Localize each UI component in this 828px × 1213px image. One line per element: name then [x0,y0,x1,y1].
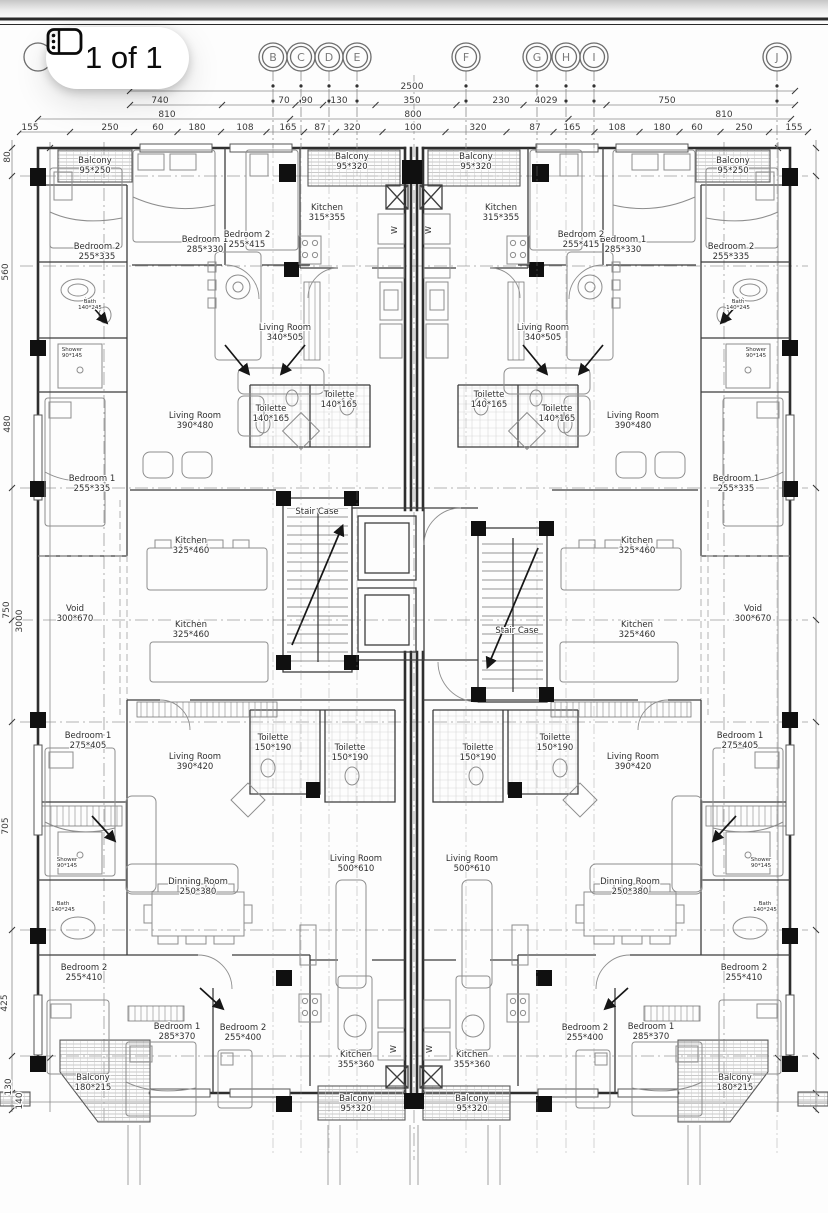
svg-text:Dinning Room: Dinning Room [168,877,228,887]
svg-text:275*405: 275*405 [70,741,107,751]
svg-text:255*335: 255*335 [79,252,116,262]
dimension-label: 87 [314,123,325,133]
room-label: Living Room390*480 [169,411,221,431]
svg-text:390*420: 390*420 [177,762,214,772]
svg-text:Bedroom 2: Bedroom 2 [61,963,108,973]
svg-text:Toilette: Toilette [257,733,289,743]
room-label: Living Room500*610 [330,854,382,874]
svg-text:Dinning Room: Dinning Room [600,877,660,887]
room-label: Living Room390*420 [169,752,221,772]
svg-text:325*460: 325*460 [173,630,210,640]
svg-text:Void: Void [744,604,762,614]
svg-text:Toilette: Toilette [255,404,287,414]
svg-text:285*330: 285*330 [187,245,224,255]
dimension-label: 155 [21,123,38,133]
dimension-label: 180 [653,123,670,133]
room-label: Kitchen315*355 [483,203,520,223]
svg-text:Living Room: Living Room [607,411,659,421]
grid-bubbles-layer: BCDEFGHIJ [24,43,791,1155]
room-label: Shower90*145 [62,347,83,359]
room-label: Kitchen325*460 [619,536,656,556]
svg-text:390*480: 390*480 [615,421,652,431]
washer-label: W [389,1045,398,1053]
room-label: Bedroom 1285*330 [600,235,647,255]
room-label: Void300*670 [735,604,772,624]
svg-text:Living Room: Living Room [330,854,382,864]
svg-text:300*670: 300*670 [735,614,772,624]
svg-text:355*360: 355*360 [338,1060,375,1070]
svg-text:Bedroom 2: Bedroom 2 [224,230,271,240]
room-label: Toilette140*165 [539,404,576,424]
dimension-row: 74070901303502304029750 [127,96,798,108]
svg-text:90*145: 90*145 [746,353,767,359]
svg-text:150*190: 150*190 [332,753,369,763]
svg-text:Bedroom 2: Bedroom 2 [562,1023,609,1033]
svg-text:325*460: 325*460 [619,630,656,640]
svg-text:90*145: 90*145 [57,863,78,869]
room-label: Balcony95*320 [455,1094,489,1114]
room-label: Kitchen355*360 [338,1050,375,1070]
washer-label: W [424,226,433,234]
room-label: Bedroom 1255*335 [69,474,116,494]
room-label: Bedroom 1285*370 [154,1022,201,1042]
svg-text:300*670: 300*670 [57,614,94,624]
room-label: Toilette140*165 [471,390,508,410]
svg-text:Bedroom 1: Bedroom 1 [65,731,112,741]
room-label: Balcony95*320 [339,1094,373,1114]
svg-text:95*250: 95*250 [717,166,748,176]
svg-text:250*380: 250*380 [180,887,217,897]
svg-text:Toilette: Toilette [462,743,494,753]
svg-text:H: H [562,51,570,64]
page-indicator-badge[interactable]: 1 of 1 [46,27,189,89]
dimension-label: 480 [3,415,13,432]
room-label: Balcony95*320 [459,152,493,172]
svg-text:Toilette: Toilette [473,390,505,400]
svg-text:Bedroom 1: Bedroom 1 [69,474,116,484]
svg-text:Balcony: Balcony [339,1094,373,1104]
room-label: Bedroom 1255*335 [713,474,760,494]
svg-text:Living Room: Living Room [259,323,311,333]
svg-text:140*165: 140*165 [253,414,290,424]
room-label: Living Room390*420 [607,752,659,772]
svg-text:255*415: 255*415 [563,240,600,250]
svg-text:140*245: 140*245 [726,305,750,311]
dimension-label: 250 [735,123,752,133]
room-label: Balcony180*215 [75,1073,112,1093]
dimension-label: 350 [403,96,420,106]
svg-text:J: J [774,51,778,64]
svg-text:285*370: 285*370 [159,1032,196,1042]
room-label: Bedroom 2255*410 [721,963,768,983]
svg-text:325*460: 325*460 [173,546,210,556]
room-label: Void300*670 [57,604,94,624]
svg-text:285*330: 285*330 [605,245,642,255]
room-label: Kitchen325*460 [619,620,656,640]
svg-text:Bedroom 2: Bedroom 2 [721,963,768,973]
svg-text:C: C [297,51,305,64]
room-label: Balcony95*320 [335,152,369,172]
svg-text:Kitchen: Kitchen [175,536,207,546]
grid-bubble-J: J [763,43,791,1155]
svg-text:Balcony: Balcony [335,152,369,162]
svg-text:315*355: 315*355 [483,213,520,223]
sheet-top-border [0,19,828,25]
room-label: Bedroom 1275*405 [65,731,112,751]
room-label: Living Room340*505 [517,323,569,343]
room-label: Bedroom 1275*405 [717,731,764,751]
svg-text:Kitchen: Kitchen [621,536,653,546]
dimension-label: 3000 [15,609,25,632]
svg-text:D: D [325,51,333,64]
svg-text:500*610: 500*610 [454,864,491,874]
svg-text:Balcony: Balcony [455,1094,489,1104]
dimension-label: 165 [563,123,580,133]
room-label: Toilette150*190 [332,743,369,763]
svg-text:Toilette: Toilette [539,733,571,743]
svg-text:250*380: 250*380 [612,887,649,897]
svg-text:Bedroom 1: Bedroom 1 [600,235,647,245]
svg-text:140*245: 140*245 [78,305,102,311]
floorplan-svg: BCDEFGHIJ 250074070901303502304029750810… [0,0,828,1213]
room-label: Toilette140*165 [253,404,290,424]
washer-label: W [425,1045,434,1053]
room-label: Toilette150*190 [460,743,497,763]
dimension-label: 108 [608,123,625,133]
svg-text:I: I [592,51,595,64]
dimension-label: 705 [1,817,11,834]
room-label: Toilette140*165 [321,390,358,410]
svg-text:140*165: 140*165 [539,414,576,424]
room-label: Bath140*245 [753,901,777,913]
room-label: Living Room340*505 [259,323,311,343]
room-label: Kitchen325*460 [173,620,210,640]
svg-text:Stair Case: Stair Case [495,626,538,636]
dimension-label: 180 [188,123,205,133]
svg-text:255*335: 255*335 [74,484,111,494]
svg-text:Balcony: Balcony [459,152,493,162]
dimension-label: 4029 [535,96,558,106]
svg-text:Living Room: Living Room [169,752,221,762]
room-label: Bedroom 2255*410 [61,963,108,983]
dimension-label: 70 [278,96,290,106]
room-label: Bedroom 2255*400 [220,1023,267,1043]
room-label: Shower90*145 [57,857,78,869]
svg-text:Kitchen: Kitchen [311,203,343,213]
svg-text:150*190: 150*190 [255,743,292,753]
svg-text:Stair Case: Stair Case [295,507,338,517]
svg-text:95*320: 95*320 [336,162,367,172]
room-label: Kitchen315*355 [309,203,346,223]
svg-text:Kitchen: Kitchen [175,620,207,630]
dimension-label: 60 [691,123,703,133]
svg-text:Balcony: Balcony [76,1073,110,1083]
svg-text:E: E [354,51,361,64]
grid-bubble-I: I [580,43,608,1155]
room-label: Balcony180*215 [717,1073,754,1093]
svg-text:355*360: 355*360 [454,1060,491,1070]
svg-text:180*215: 180*215 [75,1083,112,1093]
room-label: Living Room500*610 [446,854,498,874]
room-label: Balcony95*250 [716,156,750,176]
svg-text:255*415: 255*415 [229,240,266,250]
svg-text:95*320: 95*320 [456,1104,487,1114]
svg-text:150*190: 150*190 [537,743,574,753]
svg-text:95*320: 95*320 [460,162,491,172]
svg-text:Bedroom 1: Bedroom 1 [182,235,229,245]
svg-text:Bedroom 1: Bedroom 1 [713,474,760,484]
room-label: Stair Case [495,626,538,636]
core [276,75,554,1160]
svg-text:Toilette: Toilette [541,404,573,414]
room-label: Bath140*245 [51,901,75,913]
svg-text:Kitchen: Kitchen [621,620,653,630]
dimension-label: 60 [152,123,164,133]
svg-text:255*400: 255*400 [567,1033,604,1043]
svg-text:Bedroom 2: Bedroom 2 [558,230,605,240]
dimension-label: 750 [658,96,675,106]
dimension-label: 80 [3,151,13,163]
svg-text:Bedroom 2: Bedroom 2 [74,242,121,252]
dimension-label: 750 [2,601,12,618]
svg-text:Toilette: Toilette [334,743,366,753]
floor-plan-viewer: BCDEFGHIJ 250074070901303502304029750810… [0,0,828,1213]
svg-text:Kitchen: Kitchen [485,203,517,213]
svg-text:255*400: 255*400 [225,1033,262,1043]
dimension-label: 230 [492,96,509,106]
grid-bubble-H: H [552,43,580,1155]
room-label: Bedroom 2255*335 [708,242,755,262]
dimension-label: 425 [0,994,10,1011]
svg-text:Living Room: Living Room [517,323,569,333]
svg-text:Toilette: Toilette [323,390,355,400]
room-label: Bedroom 1285*370 [628,1022,675,1042]
svg-text:Bedroom 1: Bedroom 1 [628,1022,675,1032]
dimension-label: 155 [785,123,802,133]
svg-text:315*355: 315*355 [309,213,346,223]
svg-text:340*505: 340*505 [267,333,304,343]
svg-text:255*335: 255*335 [718,484,755,494]
dimension-label: 320 [469,123,486,133]
room-label: Bedroom 2255*415 [558,230,605,250]
room-label: Bedroom 2255*415 [224,230,271,250]
dimension-label: 165 [279,123,296,133]
dimension-label: 800 [404,110,421,120]
svg-text:G: G [533,51,542,64]
room-label: Balcony95*250 [78,156,112,176]
dimension-label: 810 [158,110,175,120]
svg-text:340*505: 340*505 [525,333,562,343]
room-label: Living Room390*480 [607,411,659,431]
svg-text:140*245: 140*245 [753,907,777,913]
room-label: Stair Case [295,507,338,517]
svg-text:Balcony: Balcony [716,156,750,166]
svg-text:95*250: 95*250 [79,166,110,176]
dimension-label: 250 [101,123,118,133]
dimension-label: 90 [301,96,313,106]
svg-text:Living Room: Living Room [607,752,659,762]
room-label: Shower90*145 [751,857,772,869]
room-label: Bedroom 2255*335 [74,242,121,262]
dimension-label: 130 [330,96,347,106]
svg-text:390*420: 390*420 [615,762,652,772]
dimension-label: 140 [15,1092,25,1109]
svg-text:Balcony: Balcony [718,1073,752,1083]
svg-text:390*480: 390*480 [177,421,214,431]
svg-text:Bedroom 1: Bedroom 1 [154,1022,201,1032]
room-label: Bedroom 2255*400 [562,1023,609,1043]
svg-text:500*610: 500*610 [338,864,375,874]
svg-text:150*190: 150*190 [460,753,497,763]
dimension-label: 740 [151,96,168,106]
dimension-label: 108 [236,123,253,133]
svg-text:Living Room: Living Room [446,854,498,864]
svg-text:275*405: 275*405 [722,741,759,751]
dimension-label: 100 [404,123,421,133]
svg-text:90*145: 90*145 [62,353,83,359]
svg-text:Bedroom 2: Bedroom 2 [220,1023,267,1033]
svg-text:Kitchen: Kitchen [340,1050,372,1060]
svg-text:B: B [269,51,277,64]
room-label: Kitchen355*360 [454,1050,491,1070]
svg-text:285*370: 285*370 [633,1032,670,1042]
room-label: Shower90*145 [746,347,767,359]
room-label: Toilette150*190 [537,733,574,753]
svg-text:90*145: 90*145 [751,863,772,869]
svg-text:Living Room: Living Room [169,411,221,421]
room-label: Toilette150*190 [255,733,292,753]
svg-text:140*165: 140*165 [471,400,508,410]
dimension-label: 2500 [401,82,424,92]
svg-text:140*245: 140*245 [51,907,75,913]
svg-text:95*320: 95*320 [340,1104,371,1114]
room-label: Kitchen325*460 [173,536,210,556]
svg-text:255*335: 255*335 [713,252,750,262]
dimension-label: 87 [529,123,540,133]
room-label: Bedroom 1285*330 [182,235,229,255]
dimension-label: 810 [715,110,732,120]
svg-text:Void: Void [66,604,84,614]
svg-text:Bedroom 2: Bedroom 2 [708,242,755,252]
dimension-label: 130 [4,1078,14,1095]
svg-text:325*460: 325*460 [619,546,656,556]
svg-text:255*410: 255*410 [66,973,103,983]
svg-text:Kitchen: Kitchen [456,1050,488,1060]
svg-text:180*215: 180*215 [717,1083,754,1093]
dimension-label: 560 [1,263,11,280]
svg-text:255*410: 255*410 [726,973,763,983]
dimension-row: 810800810 [35,110,794,122]
dimension-label: 320 [343,123,360,133]
page-count-label: 1 of 1 [85,40,163,76]
washer-label: W [390,226,399,234]
svg-text:140*165: 140*165 [321,400,358,410]
dimension-row: 2500 [127,82,798,94]
svg-text:F: F [463,51,469,64]
svg-text:Bedroom 1: Bedroom 1 [717,731,764,741]
svg-text:Balcony: Balcony [78,156,112,166]
